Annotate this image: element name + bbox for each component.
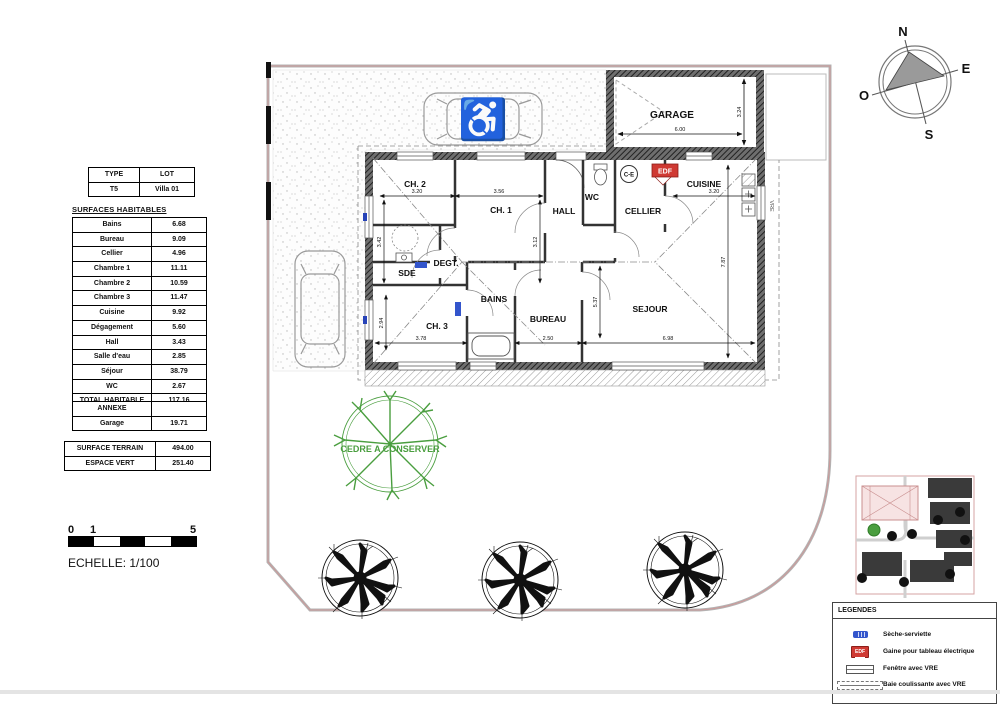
legend-item: Baie coulissante avec VRE <box>837 681 992 690</box>
bathtub <box>468 333 514 359</box>
table-row: Cuisine9.92 <box>73 306 207 321</box>
cedar-tree: CEDRE A CONSERVER <box>334 391 447 500</box>
table-row: Chambre 111.11 <box>73 262 207 277</box>
lot-header: LOT <box>140 168 195 183</box>
terrain-table: SURFACE TERRAIN494.00 ESPACE VERT251.40 <box>64 441 211 471</box>
table-row: Bureau9.09 <box>73 232 207 247</box>
edf-icon: EDF <box>851 646 869 658</box>
table-row: Salle d'eau2.85 <box>73 350 207 365</box>
dim-right-height: 7.87 <box>721 257 727 268</box>
cedar-label: CEDRE A CONSERVER <box>340 444 440 454</box>
room-label-ch1: CH. 1 <box>490 205 512 215</box>
room-label-cuisine: CUISINE <box>687 179 722 189</box>
site-plan-sheet: ♿ GARAGE 6.00 3.24 <box>0 0 1000 694</box>
room-label-hall: HALL <box>553 206 576 216</box>
boundary-wall-segment <box>266 182 271 220</box>
table-row: Dégagement5.60 <box>73 320 207 335</box>
inset-cedar-dot <box>868 524 880 536</box>
seche-serviette-icon <box>853 631 868 638</box>
scale-tick-1: 1 <box>90 525 96 536</box>
scale-tick-0: 0 <box>68 525 74 536</box>
type-value: T5 <box>89 182 140 197</box>
svg-text:C-E: C-E <box>624 173 634 179</box>
handicap-icon: ♿ <box>458 96 508 142</box>
dim-sejour-width: 6.98 <box>663 336 674 342</box>
kitchen-sink <box>742 174 755 216</box>
dim-bureau-width: 2.50 <box>543 336 554 342</box>
table-row: WC2.67 <box>73 379 207 394</box>
scale-bar: 0 1 5 ECHELLE: 1/100 <box>68 525 198 569</box>
boundary-wall-segment <box>266 62 271 78</box>
garage-side-slab <box>766 74 826 160</box>
room-label-ch3: CH. 3 <box>426 321 448 331</box>
legend-box: LEGENDES Sèche-serviette EDF Gaine pour … <box>832 602 997 704</box>
legend-item: EDF Gaine pour tableau électrique <box>837 646 992 658</box>
dim-ch1-height: 3.12 <box>533 237 539 248</box>
table-row: Séjour38.79 <box>73 364 207 379</box>
annexe-header: ANNEXE <box>73 402 152 417</box>
annexe-table: ANNEXE Garage19.71 <box>72 401 207 431</box>
table-row: Garage19.71 <box>73 416 207 431</box>
dim-cuisine-width: 3.20 <box>709 189 720 195</box>
legend-item-label: Fenêtre avec VRE <box>883 665 938 673</box>
table-row: Bains6.68 <box>73 218 207 233</box>
table-row: SURFACE TERRAIN494.00 <box>65 442 211 457</box>
window-right-cuisine <box>757 186 765 220</box>
lot-value: Villa 01 <box>140 182 195 197</box>
boundary-wall-segment <box>266 106 271 144</box>
compass-rose: N E S O <box>859 24 971 142</box>
seche-serviette-icon <box>415 262 427 268</box>
scale-tick-5: 5 <box>190 525 196 536</box>
seche-serviette-icon <box>455 302 461 316</box>
legend-item-label: Gaine pour tableau électrique <box>883 648 974 656</box>
fenetre-icon <box>846 665 874 674</box>
window-top-ch2 <box>397 152 433 160</box>
window-top-ch1 <box>477 152 525 160</box>
inset-highlighted-villa <box>862 486 918 520</box>
toilet <box>594 164 607 185</box>
legend-title: LEGENDES <box>833 603 996 619</box>
legend-item-label: Baie coulissante avec VRE <box>883 681 966 689</box>
dim-ch1-width: 3.56 <box>494 189 505 195</box>
window-bains <box>470 362 496 370</box>
room-label-sde: SDE <box>398 268 416 278</box>
garage-structure: GARAGE 6.00 3.24 <box>606 70 826 160</box>
table-row: Hall3.43 <box>73 335 207 350</box>
surfaces-title: SURFACES HABITABLES <box>72 206 167 214</box>
dim-garage-width: 6.00 <box>675 127 686 133</box>
dim-ch3-width: 3.78 <box>416 336 427 342</box>
compass-o: O <box>859 88 869 103</box>
room-label-bureau: BUREAU <box>530 314 566 324</box>
table-row: Chambre 311.47 <box>73 291 207 306</box>
legend-item-label: Sèche-serviette <box>883 631 931 639</box>
legend-item: Fenêtre avec VRE <box>837 665 992 674</box>
ce-badge: C-E <box>621 166 638 183</box>
svg-text:EDF: EDF <box>658 169 673 176</box>
room-label-wc: WC <box>585 192 599 202</box>
dim-ch2-height: 3.42 <box>377 237 383 248</box>
compass-e: E <box>962 61 971 76</box>
table-row: Chambre 210.59 <box>73 276 207 291</box>
sheet-edge <box>0 690 1000 694</box>
boundary-trees <box>318 532 727 621</box>
table-row: ESPACE VERT251.40 <box>65 456 211 471</box>
dim-sejour-height: 5.37 <box>593 297 599 308</box>
room-label-ch2: CH. 2 <box>404 179 426 189</box>
table-row: Cellier4.96 <box>73 247 207 262</box>
dim-ch2-width: 3.20 <box>412 189 423 195</box>
bay-window-ch3 <box>398 362 456 370</box>
compass-n: N <box>898 24 907 39</box>
legend-item: Sèche-serviette <box>837 631 992 639</box>
room-label-cellier: CELLIER <box>625 206 661 216</box>
baie-icon <box>837 681 883 690</box>
washbasin-sde <box>396 253 412 262</box>
room-label-sejour: SEJOUR <box>633 304 668 314</box>
window-top-cuisine <box>686 152 712 160</box>
type-header: TYPE <box>89 168 140 183</box>
type-lot-table: TYPE LOT T5 Villa 01 <box>88 167 195 197</box>
dim-garage-height: 3.24 <box>737 107 743 118</box>
site-inset-map <box>852 470 978 598</box>
scale-caption: ECHELLE: 1/100 <box>68 557 198 569</box>
surfaces-table: Bains6.68 Bureau9.09 Cellier4.96 Chambre… <box>72 217 207 409</box>
room-label-degt: DEGT. <box>433 258 458 268</box>
terrace-strip <box>365 370 765 386</box>
room-label-bains: BAINS <box>481 294 508 304</box>
dim-ch3-height: 2.94 <box>379 318 385 329</box>
vre-label: VRE <box>768 200 774 212</box>
bay-window-sejour <box>612 362 704 370</box>
compass-s: S <box>925 127 934 142</box>
room-label-garage: GARAGE <box>650 110 694 121</box>
